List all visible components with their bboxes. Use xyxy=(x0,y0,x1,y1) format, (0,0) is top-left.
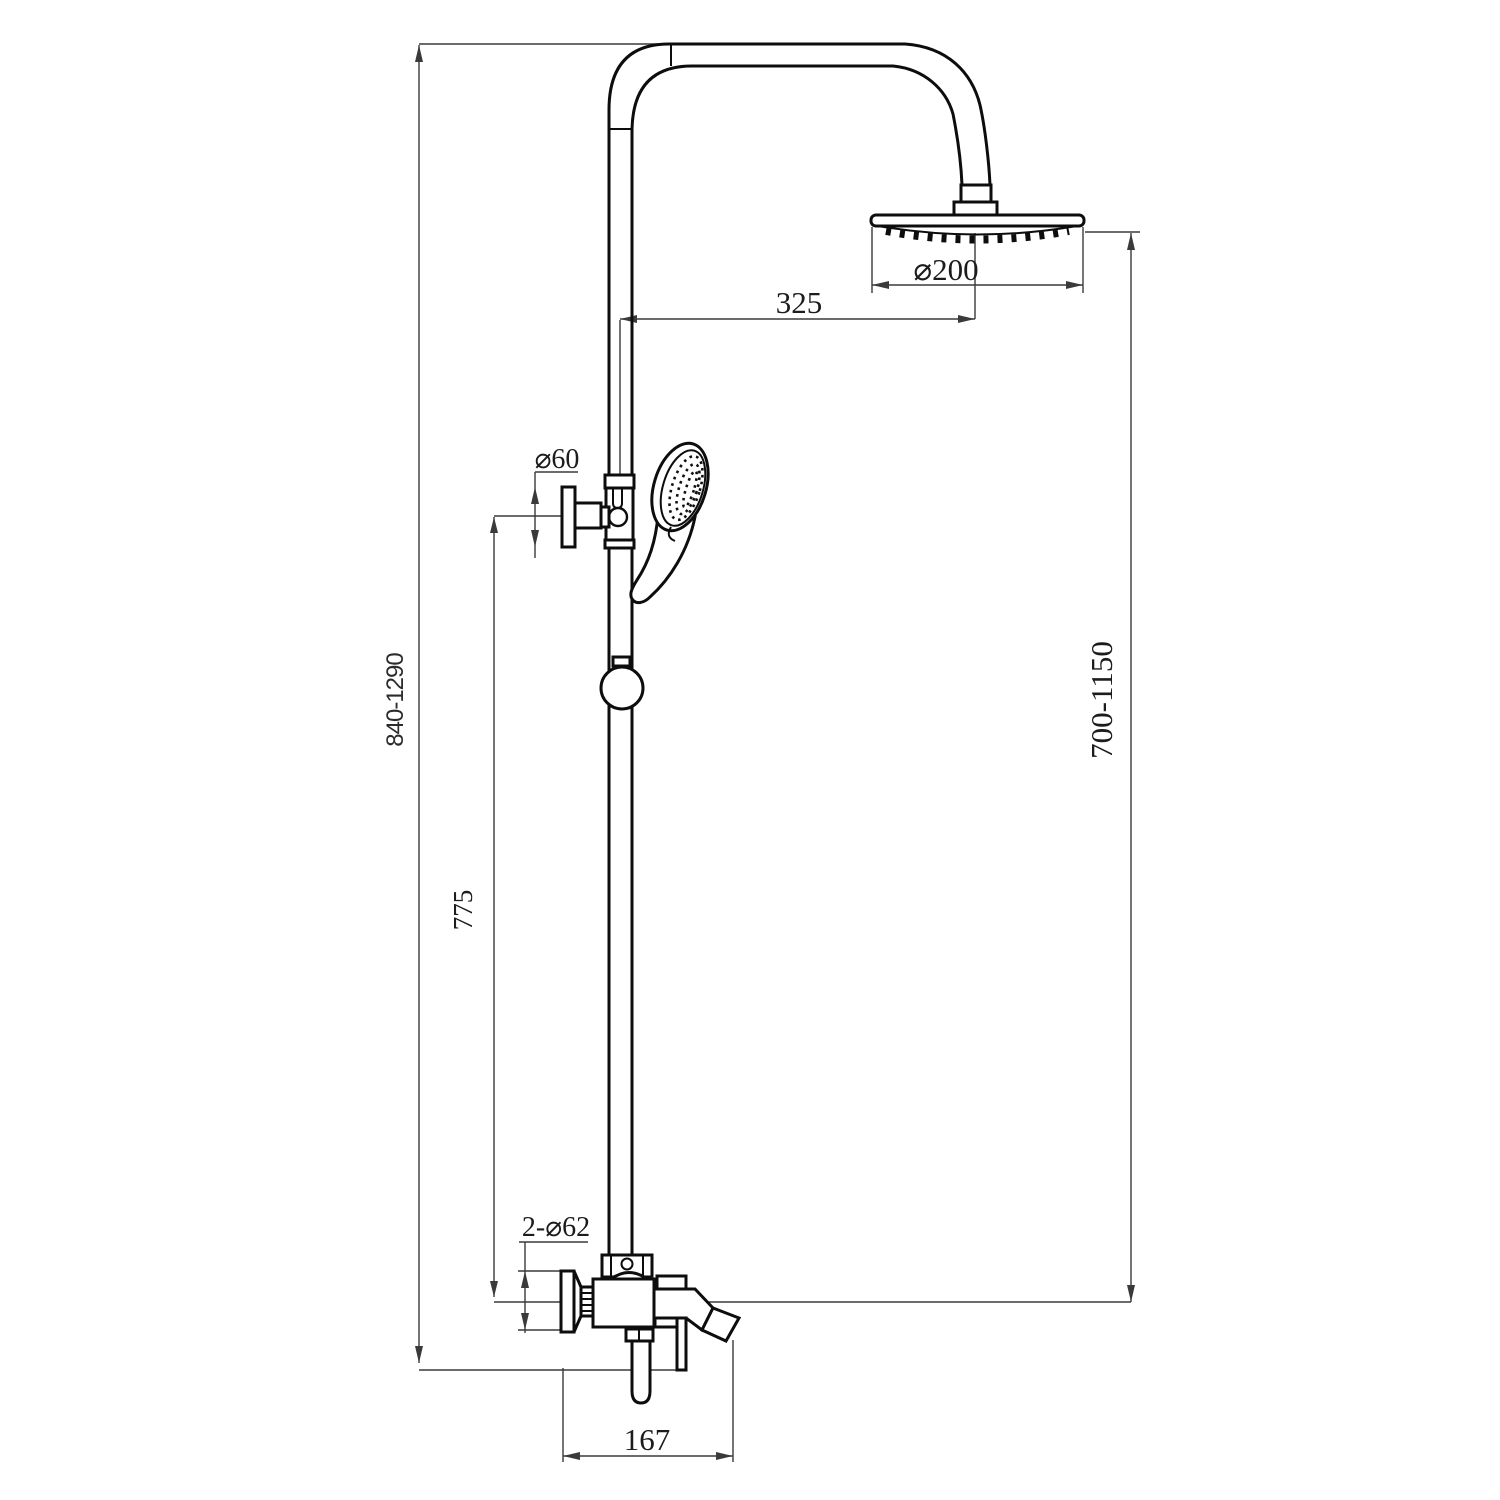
dim-label-775: 775 xyxy=(448,890,478,931)
dim-label-holder-diameter: ⌀60 xyxy=(535,444,580,475)
dim-label-overall-height: 840-1290 xyxy=(382,653,409,747)
mixer-valve xyxy=(561,1255,739,1403)
technical-drawing-canvas: 840-1290 775 700-1150 325 ⌀200 ⌀60 2-⌀62… xyxy=(0,0,1500,1500)
rain-shower-head xyxy=(871,185,1084,240)
mixer-spout xyxy=(654,1289,739,1341)
diverter-lever xyxy=(655,1318,686,1370)
ball-joint-sphere xyxy=(601,667,643,709)
dimension-lines xyxy=(415,44,1140,1462)
mixer-handle xyxy=(626,1329,653,1403)
holder-stem xyxy=(575,503,601,528)
hand-shower xyxy=(631,436,718,602)
dimension-labels: 840-1290 775 700-1150 325 ⌀200 ⌀60 2-⌀62… xyxy=(382,252,1119,1457)
dim-label-flange-diameter: 2-⌀62 xyxy=(522,1212,590,1243)
hand-shower-head xyxy=(642,436,718,537)
head-plate xyxy=(871,215,1084,226)
ball-joint xyxy=(601,657,643,709)
dim-label-head-diameter: ⌀200 xyxy=(913,252,978,287)
dim-label-700-1150: 700-1150 xyxy=(1084,641,1119,759)
shower-column-technical-drawing: 840-1290 775 700-1150 325 ⌀200 ⌀60 2-⌀62… xyxy=(0,0,1500,1500)
shower-arm xyxy=(609,44,990,185)
ball-joint-collar xyxy=(613,657,630,666)
diverter-boss xyxy=(657,1276,686,1289)
slider-knob xyxy=(609,508,627,526)
slider-top-collar xyxy=(605,475,634,488)
dim-label-spout-reach: 167 xyxy=(624,1422,671,1457)
mixer-body xyxy=(593,1279,654,1327)
arm-connector xyxy=(961,185,991,203)
shower-holder xyxy=(562,487,609,547)
wall-flange xyxy=(561,1271,593,1332)
handle-grip xyxy=(632,1341,650,1403)
dim-label-325: 325 xyxy=(776,285,823,320)
slider-bottom-collar xyxy=(605,540,634,548)
flange-plate xyxy=(561,1271,574,1332)
holder-wall-disc xyxy=(562,487,575,547)
